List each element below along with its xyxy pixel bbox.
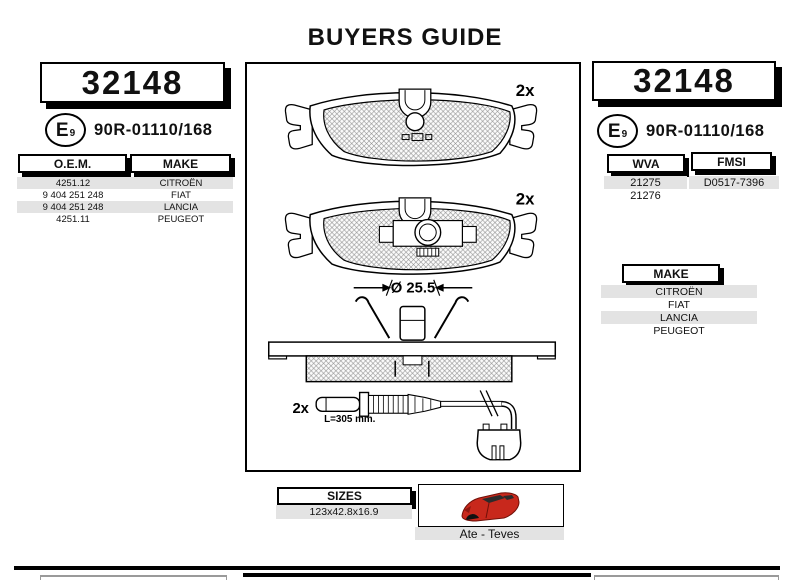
table-row: PEUGEOT [601,324,757,337]
e-mark-icon: E 9 [597,114,638,148]
oem-table-header: O.E.M. [18,154,127,173]
make-table-header-left: MAKE [130,154,231,173]
approval-code: 90R-01110/168 [646,122,764,141]
fmsi-table-header: FMSI [691,152,772,171]
part-number: 32148 [633,62,735,100]
sizes-column: 123x42.8x16.9 [276,505,412,519]
section-divider [14,566,780,570]
e-number: 9 [70,129,76,139]
technical-drawing-frame: 2x 2x Ø 25.5 [245,62,581,472]
wva-column: 21275 21276 [604,176,687,202]
part-number-box-right: 32148 [592,61,776,101]
part-number-box-left: 32148 [40,62,225,103]
table-row: 9 404 251 248 [17,189,129,201]
quantity-label-sensor: 2x [292,401,309,417]
wva-table-header: WVA [607,154,685,173]
brake-system-box [418,484,564,527]
table-row: LANCIA [601,311,757,324]
table-row: 4251.11 [17,213,129,225]
wear-sensor-drawing: 2x L=305 mm. [292,391,520,460]
pad-side-view [269,297,556,381]
brake-pad-with-clip-view [285,198,536,274]
buyers-guide-page: BUYERS GUIDE 32148 E 9 90R-01110/168 O.E… [0,0,810,580]
approval-code: 90R-01110/168 [94,121,212,140]
e-letter: E [56,121,69,140]
table-row: D0517-7396 [689,176,779,189]
table-row: 4251.12 [17,177,129,189]
brake-pad-drawing: 2x 2x Ø 25.5 [247,64,579,470]
make-column-right: CITROËN FIAT LANCIA PEUGEOT [601,285,757,337]
e-number: 9 [622,130,628,140]
oem-column: 4251.12 9 404 251 248 9 404 251 248 4251… [17,177,129,225]
part-number: 32148 [82,64,184,102]
table-row: 21276 [604,189,687,202]
table-row: CITROËN [601,285,757,298]
quantity-label-middle: 2x [516,190,535,209]
make-column-left: CITROËN FIAT LANCIA PEUGEOT [129,177,233,225]
quantity-label-top: 2x [516,81,535,100]
piston-diameter-dimension: Ø 25.5 [354,280,473,297]
table-row: FIAT [129,189,233,201]
table-row: PEUGEOT [129,213,233,225]
red-car-icon [456,488,526,524]
sizes-table-header: SIZES [277,487,412,505]
sizes-value: 123x42.8x16.9 [276,505,412,519]
approval-mark-left: E 9 90R-01110/168 [45,113,212,147]
e-letter: E [608,122,621,141]
brake-system-label: Ate - Teves [415,527,564,540]
table-row: LANCIA [129,201,233,213]
make-table-header-right: MAKE [622,264,720,283]
brake-pad-back-view [285,89,536,165]
next-section-stub-left [40,575,227,580]
table-row: FIAT [601,298,757,311]
piston-diameter-value: Ø 25.5 [391,281,435,297]
approval-mark-right: E 9 90R-01110/168 [597,114,764,148]
sensor-length-label: L=305 mm. [324,414,376,425]
fmsi-column: D0517-7396 [689,176,779,189]
table-row: CITROËN [129,177,233,189]
table-row: 9 404 251 248 [17,201,129,213]
page-title: BUYERS GUIDE [0,24,810,52]
next-section-stub-middle [243,573,591,580]
next-section-stub-right [594,575,779,580]
table-row: 21275 [604,176,687,189]
e-mark-icon: E 9 [45,113,86,147]
